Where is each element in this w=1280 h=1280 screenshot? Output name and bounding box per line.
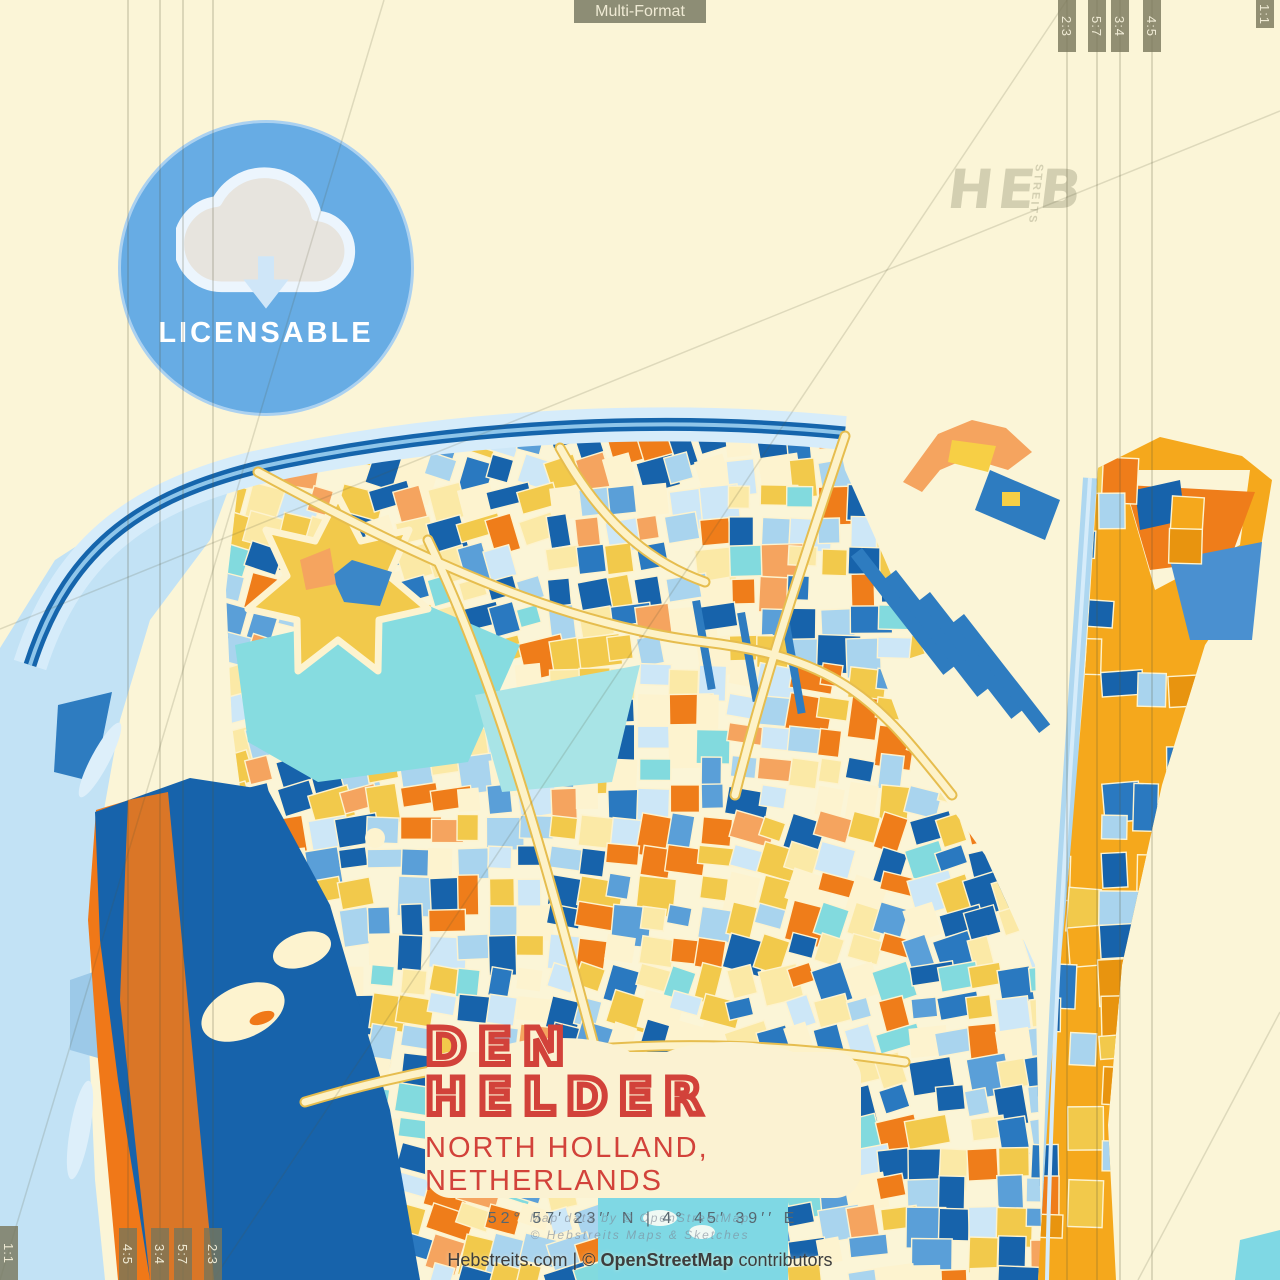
licensable-label: LICENSABLE (158, 317, 373, 350)
licensable-badge[interactable]: LICENSABLE (118, 120, 414, 416)
cloud-download-icon (176, 153, 356, 313)
ratio-label: 4:5 (121, 1243, 136, 1264)
ratio-label: 1:1 (1258, 3, 1273, 24)
ratio-label: 2:3 (1060, 15, 1075, 36)
city-title: DEN HELDER (425, 1022, 861, 1122)
ratio-tab-2-3-bottom[interactable]: 2:3 (204, 1228, 222, 1280)
ratio-label: 3:4 (153, 1243, 168, 1264)
ratio-tab-1-1-right[interactable]: 1:1 (1256, 0, 1274, 28)
ratio-tab-5-7-bottom[interactable]: 5:7 (174, 1228, 192, 1280)
ratio-tab-2-3[interactable]: 2:3 (1058, 0, 1076, 52)
footer-suffix: contributors (739, 1250, 833, 1270)
map-credits: Map data by © OpenStreetMap © Hebstreits… (0, 1210, 1280, 1244)
ratio-tab-3-4[interactable]: 3:4 (1111, 0, 1129, 52)
ratio-label: 5:7 (1090, 15, 1105, 36)
ratio-label: 3:4 (1113, 15, 1128, 36)
map-credits-line2: © Hebstreits Maps & Sketches (0, 1227, 1280, 1244)
product-image: HEB STREITS LICENSABLE DEN HELDER NORTH … (0, 0, 1280, 1280)
ratio-tab-3-4-bottom[interactable]: 3:4 (151, 1228, 169, 1280)
ratio-label: 5:7 (176, 1243, 191, 1264)
ratio-tab-1-1-left[interactable]: 1:1 (0, 1226, 18, 1280)
ratio-tab-5-7[interactable]: 5:7 (1088, 0, 1106, 52)
multi-format-label: Multi-Format (595, 3, 685, 21)
ratio-label: 1:1 (2, 1242, 17, 1263)
map-credits-line1: Map data by © OpenStreetMap (0, 1210, 1280, 1227)
ratio-tab-4-5-bottom[interactable]: 4:5 (119, 1228, 137, 1280)
footer-osm-prefix: © (582, 1250, 595, 1270)
ratio-label: 2:3 (206, 1243, 221, 1264)
region-subtitle: NORTH HOLLAND, NETHERLANDS (425, 1132, 861, 1198)
heb-watermark-text: HEB (944, 158, 1090, 221)
footer-site-link[interactable]: Hebstreits.com (447, 1250, 567, 1270)
multi-format-tab[interactable]: Multi-Format (574, 0, 706, 23)
ratio-label: 4:5 (1145, 15, 1160, 36)
footer-separator: | (572, 1250, 577, 1270)
ratio-tab-4-5[interactable]: 4:5 (1143, 0, 1161, 52)
footer-osm-link[interactable]: OpenStreetMap (600, 1250, 733, 1270)
heb-watermark: HEB STREITS (944, 158, 1090, 221)
footer-credit: Hebstreits.com | © OpenStreetMap contrib… (0, 1250, 1280, 1271)
title-plate: DEN HELDER NORTH HOLLAND, NETHERLANDS 52… (425, 1052, 861, 1198)
